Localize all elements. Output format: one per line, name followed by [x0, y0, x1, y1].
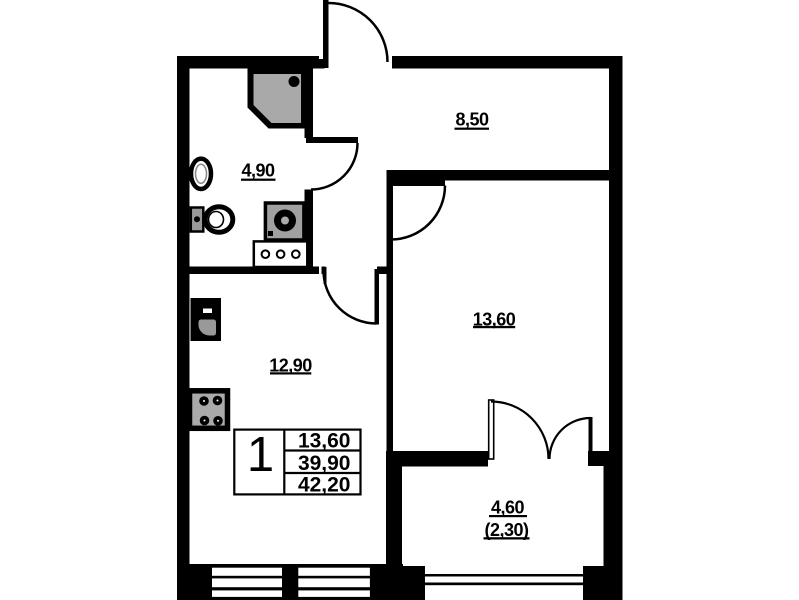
svg-text:39,90: 39,90 [298, 452, 351, 475]
svg-text:42,20: 42,20 [298, 474, 351, 497]
svg-text:(2,30): (2,30) [484, 520, 529, 540]
svg-text:4,90: 4,90 [241, 161, 275, 181]
svg-text:4,60: 4,60 [491, 498, 525, 518]
svg-text:13,60: 13,60 [298, 430, 351, 453]
svg-text:1: 1 [247, 428, 274, 482]
svg-text:8,50: 8,50 [455, 110, 489, 130]
